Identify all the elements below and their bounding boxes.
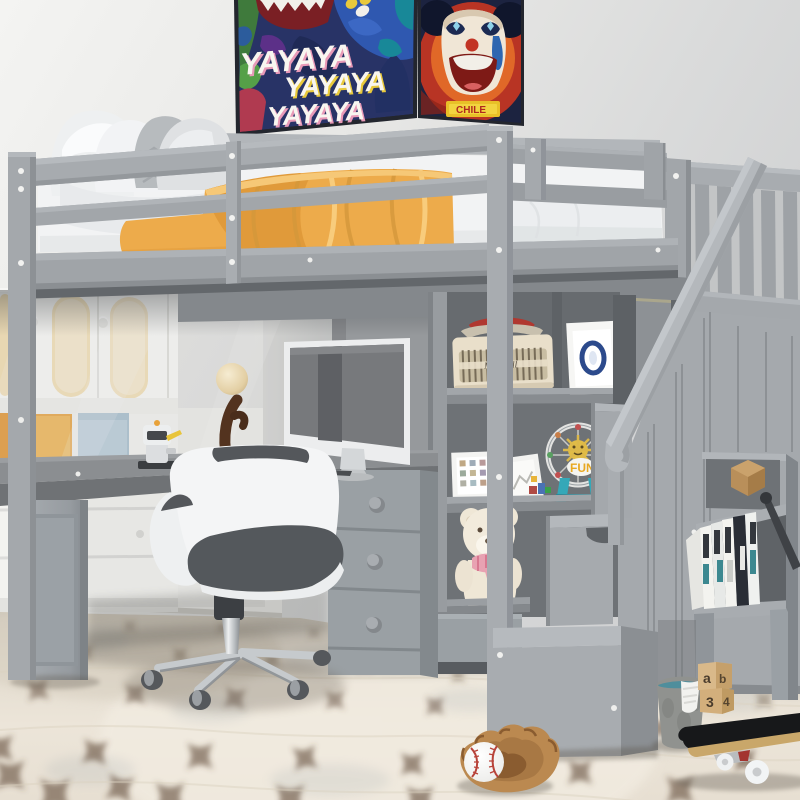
svg-text:FUN: FUN — [570, 461, 595, 475]
svg-text:a: a — [703, 670, 711, 686]
svg-text:CHILE: CHILE — [456, 105, 486, 116]
svg-text:3: 3 — [706, 694, 714, 710]
svg-text:b: b — [719, 672, 726, 686]
svg-text:4: 4 — [723, 695, 730, 709]
